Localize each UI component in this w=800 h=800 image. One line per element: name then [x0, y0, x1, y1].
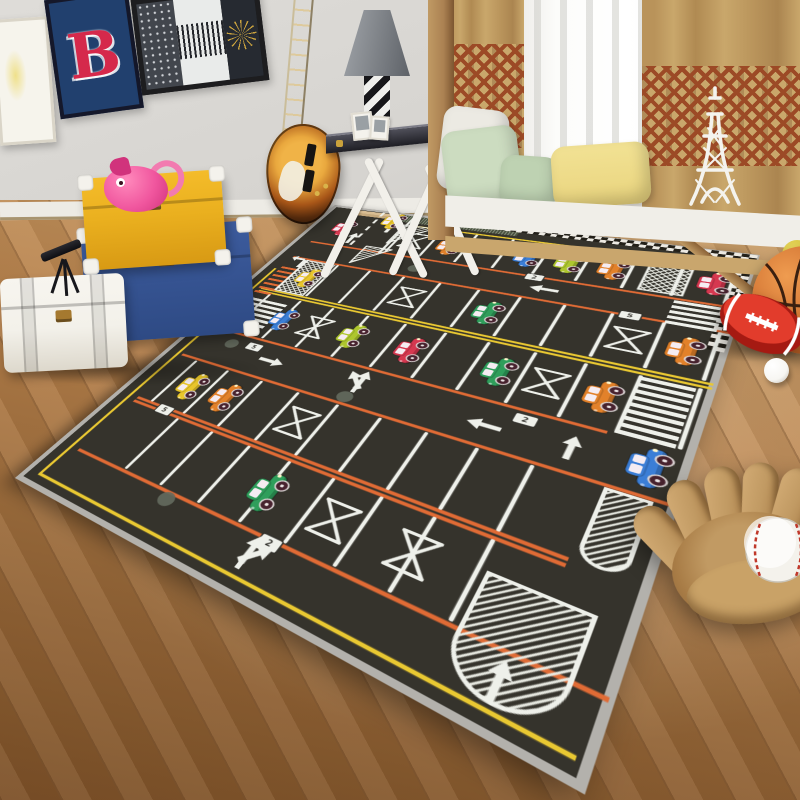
boston-b-poster: B: [44, 0, 144, 119]
guitar-pickup: [304, 143, 317, 166]
baseball: [744, 516, 800, 584]
trunk-corner-cap: [77, 174, 94, 191]
trunk-corner-cap: [243, 320, 260, 337]
art-blob: [3, 49, 29, 102]
trunk-corner-cap: [236, 216, 253, 233]
starburst-graphic: [225, 18, 258, 51]
framed-art-print: [0, 16, 56, 146]
photo: [374, 120, 386, 133]
eiffel-tower-figurine: [684, 84, 746, 208]
brass-corner: [336, 140, 343, 147]
soundwave-graphic: [176, 20, 227, 59]
pink-piggy-toy: [104, 160, 174, 214]
trunk-strap: [20, 278, 39, 373]
trunk-strap: [90, 274, 109, 369]
small-photo-frame: [369, 115, 390, 140]
yellow-pillow: [550, 141, 652, 210]
framed-picture: [131, 0, 270, 95]
guitar-knob: [323, 183, 328, 188]
photo: [355, 115, 369, 131]
guitar-knob: [315, 191, 320, 196]
poster-letter: B: [63, 14, 125, 94]
trunk-clasp: [55, 310, 72, 323]
trunk-corner-cap: [83, 258, 100, 275]
trunk-corner-cap: [208, 165, 225, 182]
ping-pong-ball: [764, 358, 789, 383]
trunk-corner-cap: [214, 249, 231, 266]
kids-room-photo: 252525 B: [0, 0, 800, 800]
piggy-pupil: [119, 181, 123, 185]
